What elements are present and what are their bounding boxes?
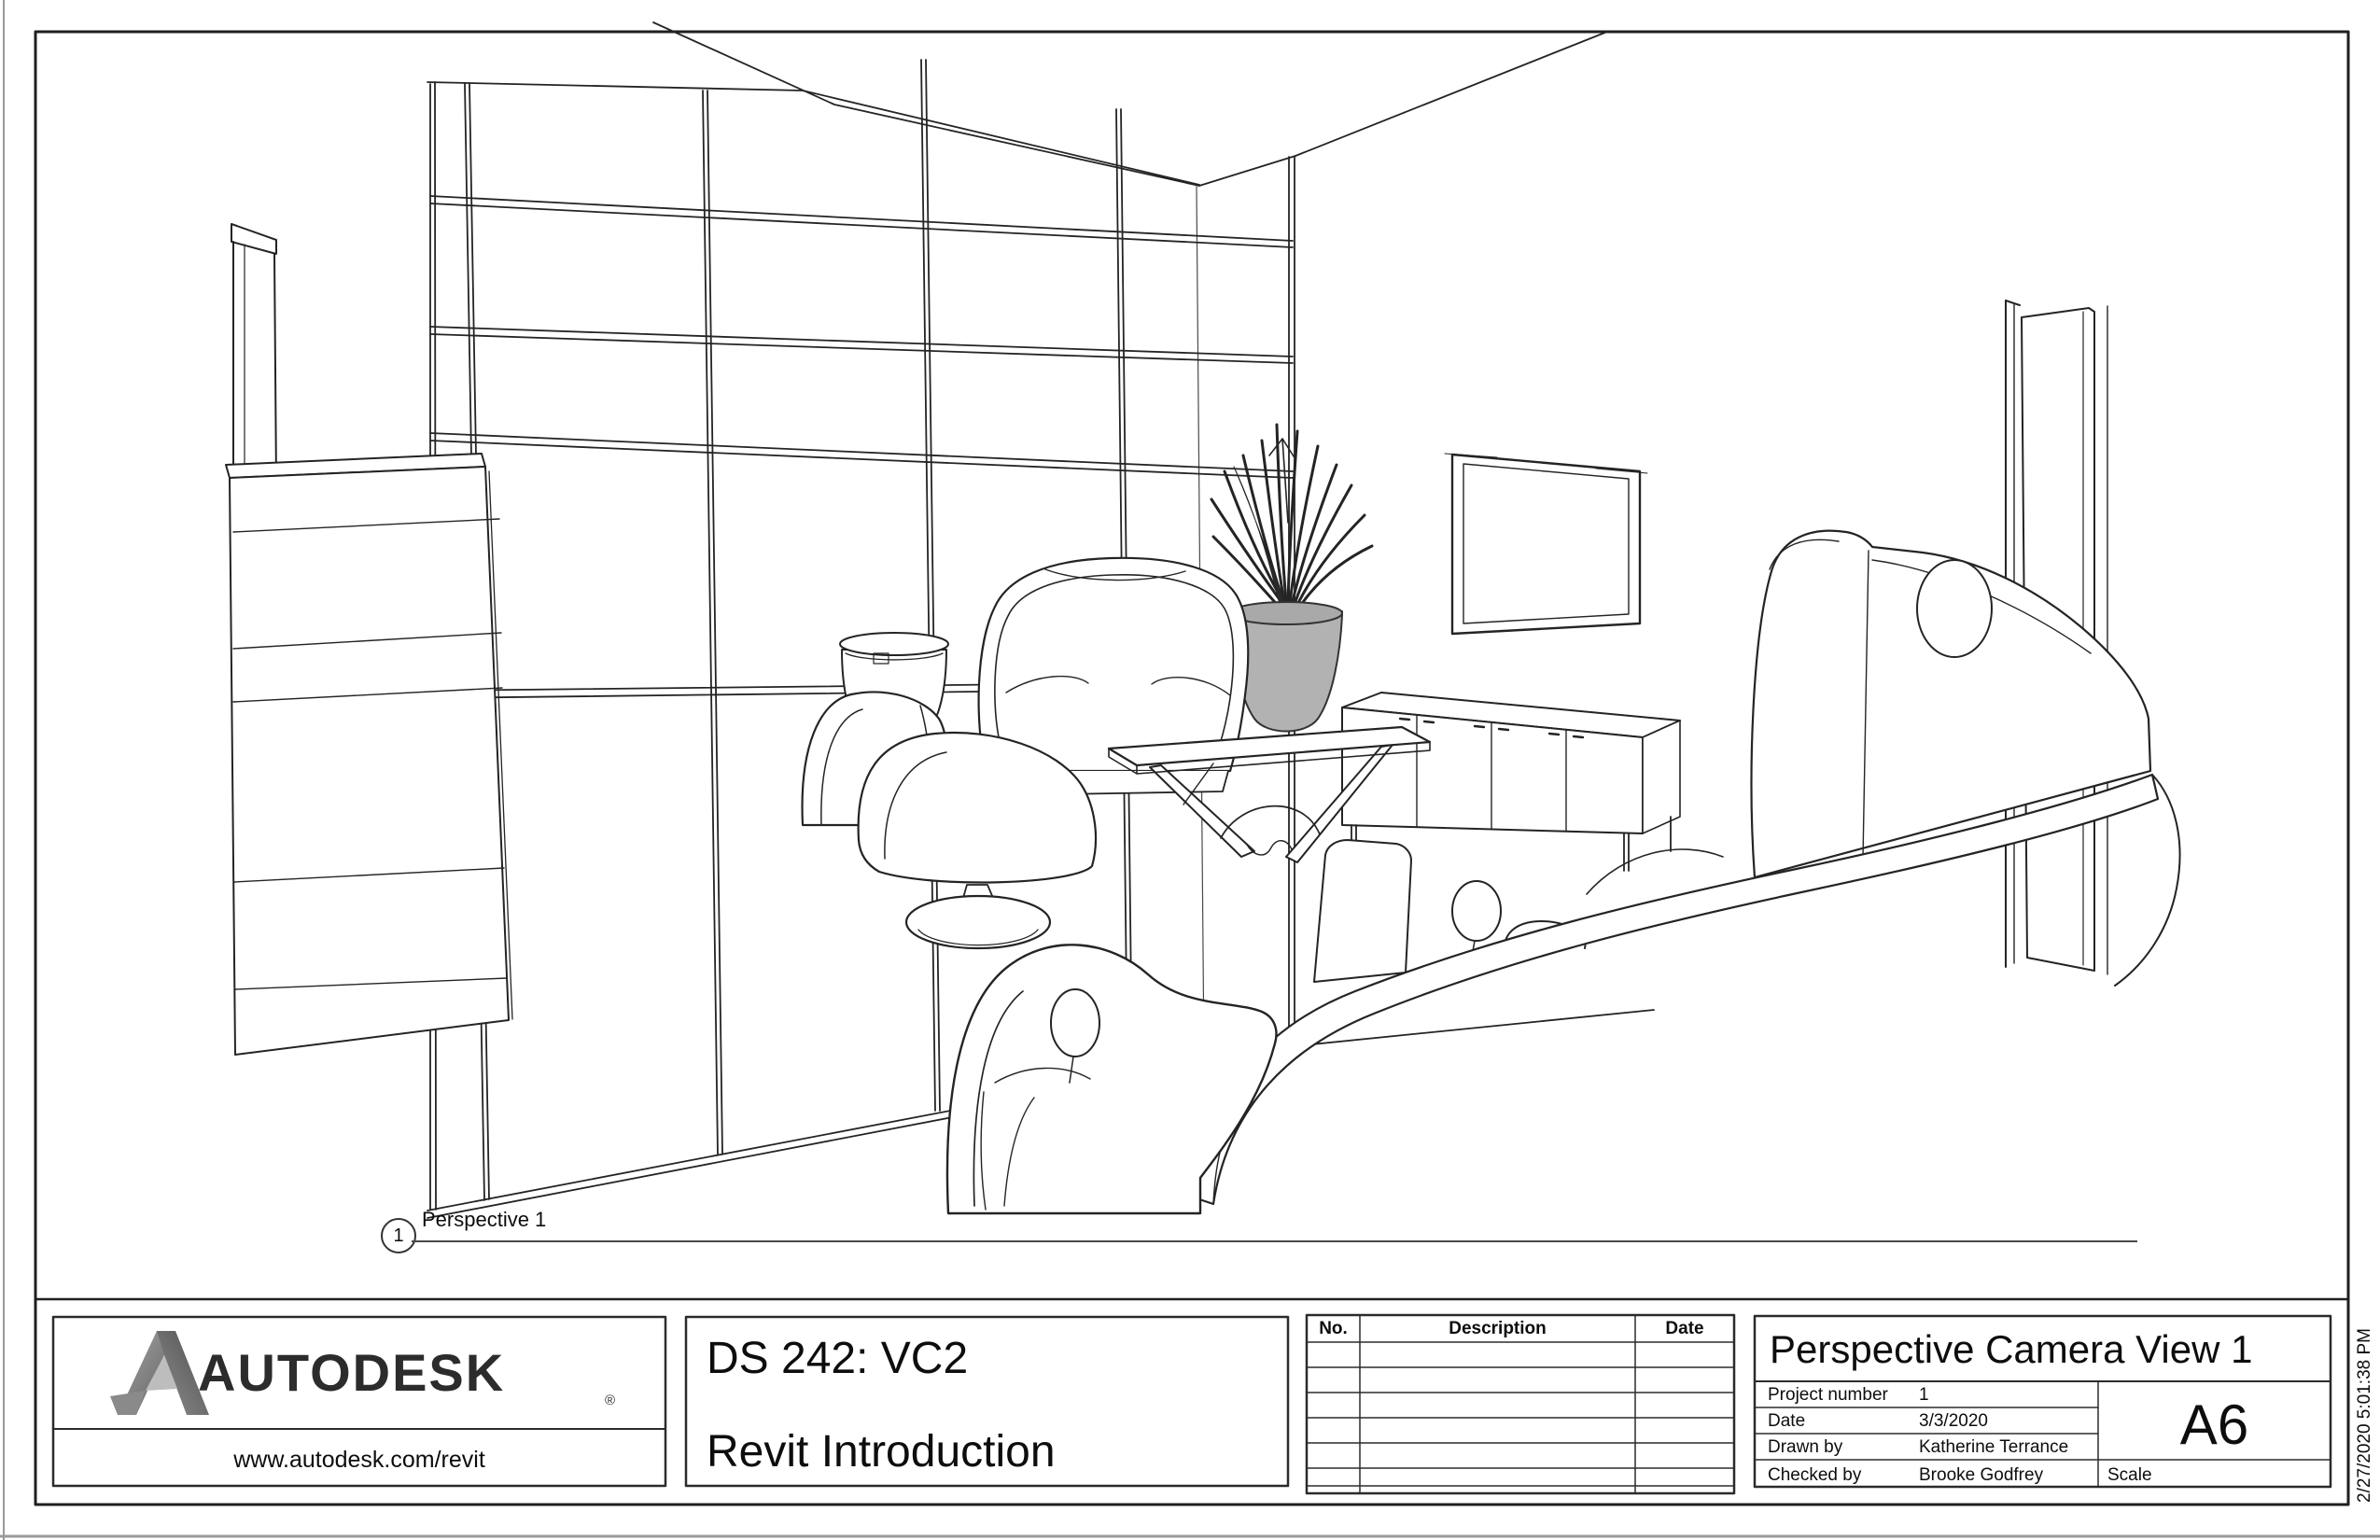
project-title: Revit Introduction bbox=[707, 1426, 1056, 1477]
view-number: 1 bbox=[393, 1225, 403, 1247]
autodesk-wordmark: AUTODESK bbox=[198, 1342, 505, 1403]
revision-table-grid bbox=[1307, 1315, 1734, 1493]
field-label-project-number: Project number bbox=[1768, 1385, 1888, 1406]
field-label-checked-by: Checked by bbox=[1768, 1465, 1861, 1486]
registered-mark: ® bbox=[605, 1393, 615, 1408]
sheet-title: Perspective Camera View 1 bbox=[1770, 1327, 2252, 1372]
revision-col-no: No. bbox=[1307, 1319, 1360, 1339]
field-value-checked-by: Brooke Godfrey bbox=[1919, 1465, 2043, 1486]
sectional-left-backrest bbox=[1314, 840, 1411, 982]
field-value-project-number: 1 bbox=[1919, 1385, 1929, 1406]
field-value-date: 3/3/2020 bbox=[1919, 1411, 1988, 1432]
view-title: Perspective 1 bbox=[422, 1208, 546, 1232]
view-title-underline bbox=[412, 1240, 2137, 1242]
view-number-bubble: 1 bbox=[381, 1218, 416, 1253]
sheet-line-art bbox=[0, 0, 2380, 1540]
sectional-headrest-left bbox=[1452, 881, 1501, 941]
sheet-number: A6 bbox=[2098, 1393, 2331, 1457]
field-label-drawn-by: Drawn by bbox=[1768, 1437, 1842, 1458]
scale-label: Scale bbox=[2107, 1465, 2152, 1486]
sectional-headrest-right bbox=[1917, 560, 1992, 657]
sectional-back-rail bbox=[1191, 775, 2158, 1204]
foreground-armchair bbox=[947, 945, 1276, 1213]
autodesk-url: www.autodesk.com/revit bbox=[53, 1447, 665, 1474]
course-code: DS 242: VC2 bbox=[707, 1333, 968, 1384]
ceiling-lines bbox=[653, 22, 1607, 186]
tulip-chair bbox=[859, 733, 1096, 948]
field-label-date: Date bbox=[1768, 1411, 1805, 1432]
revision-col-description: Description bbox=[1360, 1319, 1635, 1339]
print-timestamp: 2/27/2020 5:01:38 PM bbox=[2355, 1328, 2375, 1503]
autodesk-logo-icon bbox=[110, 1331, 209, 1415]
perspective-view-drawing bbox=[226, 22, 2180, 1218]
plant-leaves bbox=[1211, 425, 1372, 610]
revision-col-date: Date bbox=[1635, 1319, 1734, 1339]
field-value-drawn-by: Katherine Terrance bbox=[1919, 1437, 2068, 1458]
tv-frame bbox=[1445, 454, 1647, 634]
drawing-sheet: 1 Perspective 1 AUTODESK ® www.autodesk.… bbox=[0, 0, 2380, 1540]
